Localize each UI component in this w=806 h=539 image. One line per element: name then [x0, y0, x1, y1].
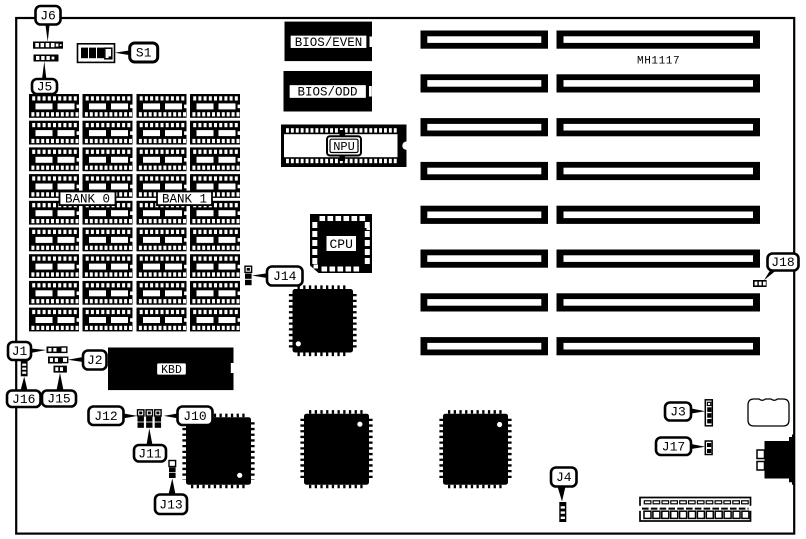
svg-text:BANK 1: BANK 1: [162, 192, 207, 206]
svg-text:BANK 0: BANK 0: [65, 192, 110, 206]
svg-text:J17: J17: [662, 439, 685, 454]
svg-text:J11: J11: [138, 446, 162, 461]
svg-text:J18: J18: [771, 255, 794, 270]
svg-text:J1: J1: [12, 344, 28, 359]
svg-text:J10: J10: [183, 409, 206, 424]
svg-text:J16: J16: [12, 392, 35, 407]
svg-text:J15: J15: [47, 392, 70, 407]
svg-text:S1: S1: [136, 46, 152, 61]
svg-text:J6: J6: [40, 8, 56, 23]
svg-text:J5: J5: [37, 80, 53, 95]
svg-text:J4: J4: [556, 470, 572, 485]
svg-text:CPU: CPU: [329, 237, 352, 252]
svg-text:KBD: KBD: [161, 364, 182, 377]
svg-text:J2: J2: [87, 353, 103, 368]
svg-text:BIOS/EVEN: BIOS/EVEN: [295, 36, 363, 50]
svg-text:J3: J3: [670, 405, 686, 420]
svg-text:MH1117: MH1117: [637, 56, 680, 68]
svg-text:BIOS/ODD: BIOS/ODD: [297, 86, 357, 100]
svg-text:J14: J14: [273, 269, 297, 284]
svg-text:J13: J13: [159, 497, 182, 512]
svg-text:NPU: NPU: [333, 140, 355, 154]
svg-text:J12: J12: [94, 409, 117, 424]
